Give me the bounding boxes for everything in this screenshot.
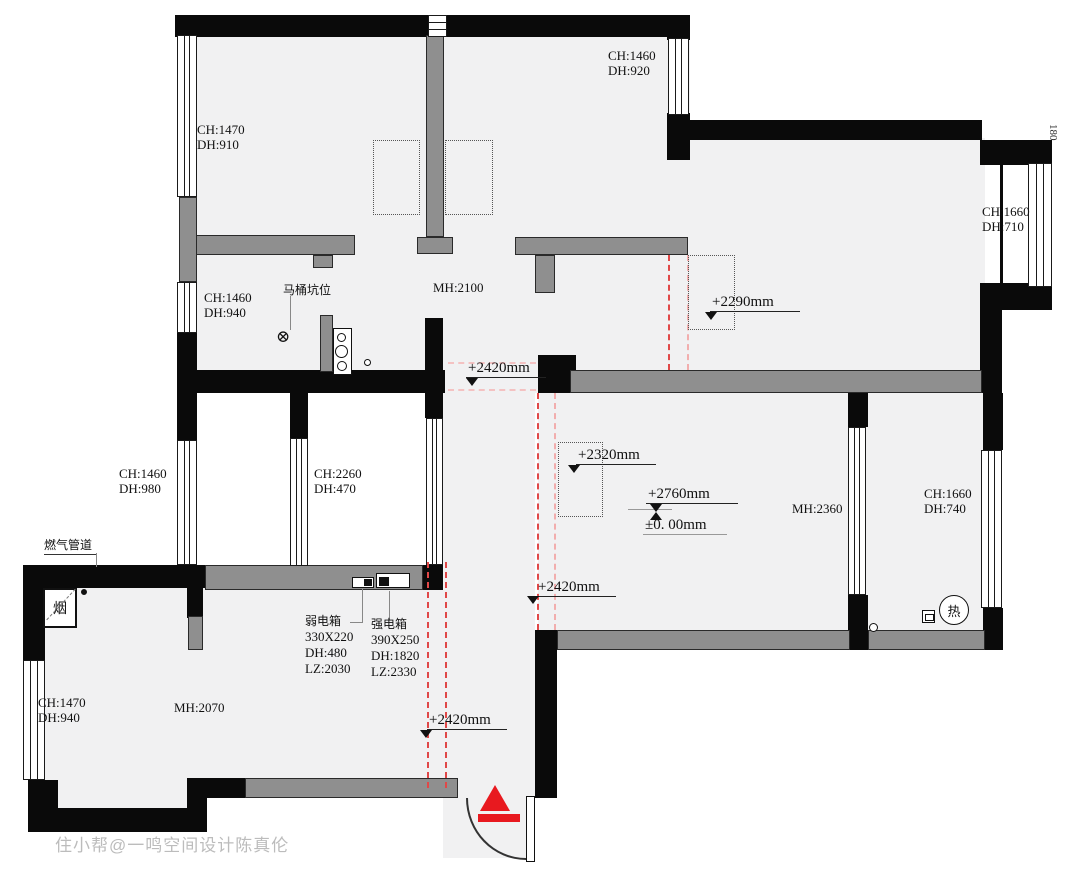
window-label: CH:1460 DH:980: [119, 466, 167, 496]
ch-value: CH:1470: [197, 122, 245, 137]
window-label: CH:1660 DH:740: [924, 486, 972, 516]
wall: [983, 608, 1003, 650]
window: [848, 427, 866, 595]
window: [177, 440, 197, 565]
wall: [535, 630, 557, 798]
wall: [983, 393, 1003, 450]
window: [668, 38, 689, 115]
level-mark-entry: +2420mm: [427, 712, 507, 730]
wall: [980, 140, 1052, 165]
ch-value: CH:1470: [38, 695, 86, 710]
partition-wall: [313, 255, 333, 268]
demolition-line: [445, 562, 447, 788]
wall: [23, 565, 205, 588]
level-mark-hall: +2420mm: [466, 360, 546, 378]
level-arrow-icon: [527, 596, 539, 604]
box-mark: [364, 579, 372, 586]
dh-value: DH:910: [197, 137, 245, 152]
datum-symbol-icon: [650, 504, 662, 512]
window: [426, 418, 443, 565]
wall: [447, 15, 690, 37]
box-size: 330X220: [305, 629, 353, 645]
wall: [290, 393, 308, 438]
meter-mark: [925, 614, 934, 621]
edge-dimension-note: 180: [1045, 124, 1060, 141]
level-mark-datum-bottom: ±0. 00mm: [643, 517, 727, 535]
wall: [425, 318, 443, 418]
window: [177, 282, 197, 333]
partition-wall: [515, 237, 688, 255]
window-label: CH:2260 DH:470: [314, 466, 362, 496]
dh-value: DH:920: [608, 63, 656, 78]
partition-wall: [426, 35, 444, 237]
box-mark: [379, 577, 389, 586]
partition-wall: [417, 237, 453, 254]
ch-value: CH:1460: [119, 466, 167, 481]
partition-wall: [557, 630, 850, 650]
wall: [848, 393, 868, 427]
level-arrow-icon: [705, 312, 717, 320]
wall-hinge-dot: [869, 623, 878, 632]
wall: [980, 283, 1052, 310]
wall: [175, 15, 428, 37]
level-arrow-icon: [568, 465, 580, 473]
level-arrow-icon: [420, 730, 432, 738]
floor-plan: CH:1470 DH:910 CH:1460 DH:920 CH:1660 DH…: [0, 0, 1080, 870]
level-mark-corridor: +2420mm: [536, 579, 616, 597]
window: [177, 35, 197, 197]
floor-bottom-left-room-b: [205, 565, 460, 798]
box-title: 强电箱: [371, 616, 419, 632]
wall: [667, 113, 690, 160]
strong-current-box-label: 强电箱 390X250 DH:1820 LZ:2330: [371, 616, 419, 680]
window-label: CH:1460 DH:940: [204, 290, 252, 320]
toilet-leader: [290, 296, 291, 330]
dh-value: DH:470: [314, 481, 362, 496]
pipe-circle: [337, 361, 347, 371]
demolition-line: [427, 562, 429, 788]
floor-living-room: [538, 370, 983, 650]
wall: [207, 778, 247, 798]
door-hinge-dot: [364, 359, 371, 366]
dh-value: DH:940: [204, 305, 252, 320]
watermark: 住小帮@一鸣空间设计陈真伦: [55, 831, 289, 856]
electrical-box-symbol: [376, 573, 410, 588]
wall: [667, 15, 690, 40]
box-lz: LZ:2030: [305, 661, 353, 677]
height-label: MH:2100: [433, 280, 484, 295]
partition-wall: [570, 370, 982, 393]
dh-value: DH:980: [119, 481, 167, 496]
window: [290, 438, 308, 566]
window-label: CH:1460 DH:920: [608, 48, 656, 78]
ch-value: CH:1660: [924, 486, 972, 501]
window: [428, 15, 447, 37]
wall: [177, 393, 197, 440]
gas-pipe-dot: [81, 589, 87, 595]
level-mark-datum-top: +2760mm: [646, 486, 738, 504]
ch-value: CH:1660: [982, 204, 1030, 219]
water-heater-label: 热: [947, 601, 960, 620]
partition-wall: [180, 235, 355, 255]
pipe-circle: [337, 333, 346, 342]
wall: [28, 780, 58, 832]
meter-symbol: [922, 610, 935, 623]
closet-outline: [445, 140, 493, 215]
wall: [55, 808, 207, 832]
partition-wall: [188, 616, 203, 650]
level-mark-living: +2320mm: [576, 447, 656, 465]
pipe-circle: [335, 345, 348, 358]
leader: [362, 589, 363, 623]
demolition-line: [448, 389, 536, 391]
partition-wall: [868, 630, 985, 650]
electrical-box-symbol: [352, 577, 374, 588]
weak-current-box-label: 弱电箱 330X220 DH:480 LZ:2030: [305, 613, 353, 677]
demolition-line: [668, 255, 670, 370]
partition-wall: [535, 255, 555, 293]
window-label: CH:1660 DH:710: [982, 204, 1030, 234]
dh-value: DH:710: [982, 219, 1030, 234]
gas-pipe-label: 燃气管道: [44, 538, 96, 555]
partition-wall: [179, 197, 197, 282]
dh-value: DH:940: [38, 710, 86, 725]
height-label: MH:2070: [174, 700, 225, 715]
box-dh: DH:1820: [371, 648, 419, 664]
entry-marker-bar: [478, 814, 520, 822]
wall: [688, 120, 982, 140]
level-arrow-icon: [466, 378, 478, 386]
box-title: 弱电箱: [305, 613, 353, 629]
gas-pipe-leader: [96, 553, 97, 567]
wall: [197, 370, 445, 393]
toilet-drain-icon: ⊗: [276, 327, 290, 347]
wall: [848, 595, 868, 650]
box-lz: LZ:2330: [371, 664, 419, 680]
wall: [177, 333, 197, 393]
window-label: CH:1470 DH:910: [197, 122, 245, 152]
box-dh: DH:480: [305, 645, 353, 661]
wall: [187, 588, 203, 618]
wall: [187, 778, 207, 832]
ch-value: CH:2260: [314, 466, 362, 481]
dh-value: DH:740: [924, 501, 972, 516]
box-size: 390X250: [371, 632, 419, 648]
level-mark-right-room: +2290mm: [710, 294, 800, 312]
partition-wall: [320, 315, 333, 372]
window: [981, 450, 1002, 608]
closet-outline: [373, 140, 420, 215]
ch-value: CH:1460: [608, 48, 656, 63]
ch-value: CH:1460: [204, 290, 252, 305]
window: [1028, 163, 1052, 287]
window-label: CH:1470 DH:940: [38, 695, 86, 725]
wall: [421, 565, 443, 590]
entry-marker-triangle: [480, 785, 510, 811]
water-heater-symbol: 热: [939, 595, 969, 625]
flue-box: 烟: [43, 588, 77, 628]
wall: [980, 308, 1002, 393]
entry-door-leaf: [526, 796, 535, 862]
height-label: MH:2360: [792, 501, 843, 516]
